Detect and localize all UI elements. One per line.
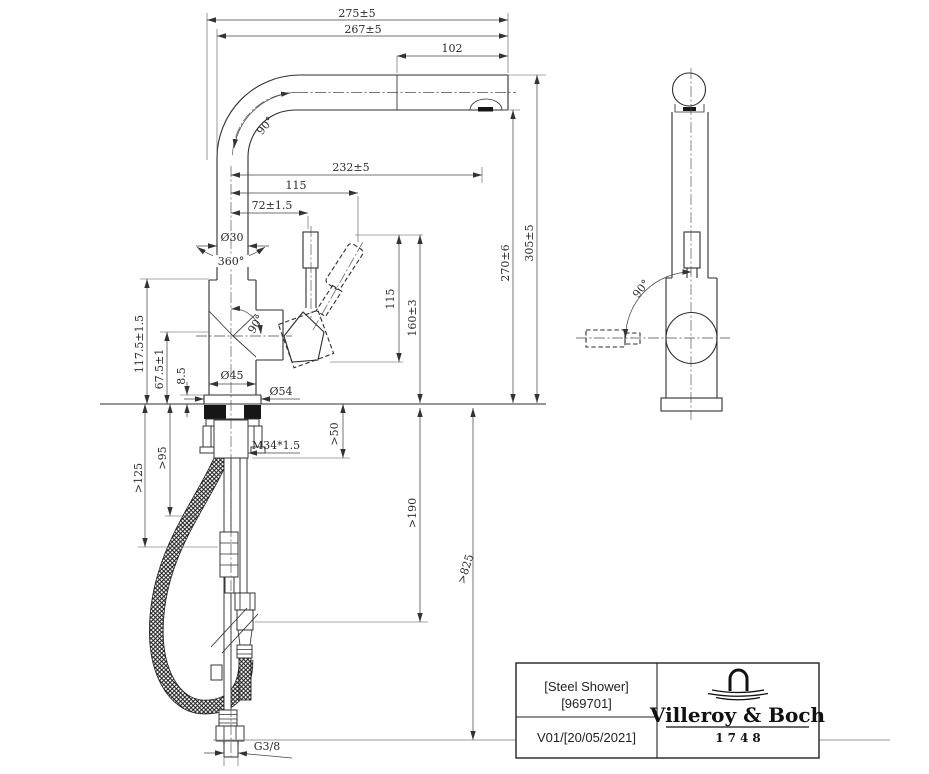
check-valve: [235, 593, 255, 658]
title-block: [Steel Shower] [969701] V01/[20/05/2021]…: [516, 663, 826, 758]
dim-swivel-range: 360°: [218, 255, 245, 268]
brand-year: 1748: [715, 731, 764, 745]
dim-shank-thread: M34*1.5: [252, 439, 300, 452]
handle-front: [278, 226, 364, 368]
dim-handle-tip-offset: 115: [286, 179, 307, 192]
hose-coupler: [220, 532, 238, 577]
handle-rod-dashed: [316, 285, 342, 316]
technical-drawing: 275±5 267±5 102 90° 232±5 115 72±1.5 Ø30…: [0, 0, 929, 774]
g38-nut: [216, 726, 244, 741]
dim-spout-underside-height: 270±6: [499, 244, 512, 281]
dim-handle-swing-side: 90°: [630, 277, 652, 300]
handle-knob-side: [684, 232, 700, 268]
dim-spray-head-length: 102: [442, 42, 463, 55]
dim-clearance-125: >125: [132, 463, 145, 493]
body-joint-cut: [209, 311, 256, 357]
supply-end-fitting: [216, 710, 244, 757]
base-flange: [204, 395, 261, 404]
handle-dashed-side: [586, 330, 625, 347]
spout-column-side: [672, 112, 708, 278]
dim-spout-projection: 267±5: [344, 23, 381, 36]
dim-base-ring-height: 8.5: [175, 367, 188, 385]
dim-deck-clearance: >50: [328, 422, 341, 445]
braided-hose: [156, 452, 251, 707]
dim-spout-bend-angle: 90°: [254, 114, 276, 137]
brand-name: Villeroy & Boch: [649, 703, 826, 727]
dim-handle-axis-offset: 72±1.5: [252, 199, 293, 212]
dim-body-diameter: Ø45: [220, 369, 243, 382]
supply-tube-right: [240, 458, 247, 593]
spout-bend: [217, 75, 300, 158]
dim-handle-vertical-span: 115: [384, 289, 397, 310]
stud-bolt: [203, 426, 211, 447]
dim-supply-thread: G3/8: [254, 740, 281, 753]
dim-overall-projection: 275±5: [338, 7, 375, 20]
drawing-page: 275±5 267±5 102 90° 232±5 115 72±1.5 Ø30…: [0, 0, 929, 774]
spray-holder-dashed: [278, 310, 333, 368]
dim-handle-axis-height: 67.5±1: [153, 349, 166, 390]
dim-body-height: 117.5±1.5: [133, 315, 146, 373]
handle-knob-solid: [303, 232, 318, 268]
mounting-tab: [211, 665, 222, 680]
handle-axis-centerline: [313, 240, 364, 330]
dim-connection-length: >190: [406, 498, 419, 528]
aerator-outlet: [478, 107, 493, 112]
dim-clearance-95: >95: [156, 446, 169, 469]
dim-spout-reach: 232±5: [332, 161, 369, 174]
article-number: [969701]: [561, 696, 612, 711]
dim-handle-top-height: 160±3: [406, 299, 419, 336]
handle-joint: [284, 312, 324, 362]
dim-handle-swing-front: 90°: [245, 312, 266, 335]
seal-gasket: [204, 405, 226, 419]
dim-spout-tube-diameter: Ø30: [220, 231, 243, 244]
product-name: [Steel Shower]: [544, 679, 629, 694]
front-view: 275±5 267±5 102 90° 232±5 115 72±1.5 Ø30…: [100, 7, 890, 766]
base-plate-side: [661, 398, 722, 411]
spray-head-side: [673, 73, 706, 106]
version-date: V01/[20/05/2021]: [537, 730, 636, 745]
dim-base-diameter: Ø54: [269, 385, 292, 398]
under-deck-fittings: [211, 532, 258, 757]
dim-overall-height: 305±5: [523, 224, 536, 261]
side-view: 90°: [576, 68, 730, 420]
